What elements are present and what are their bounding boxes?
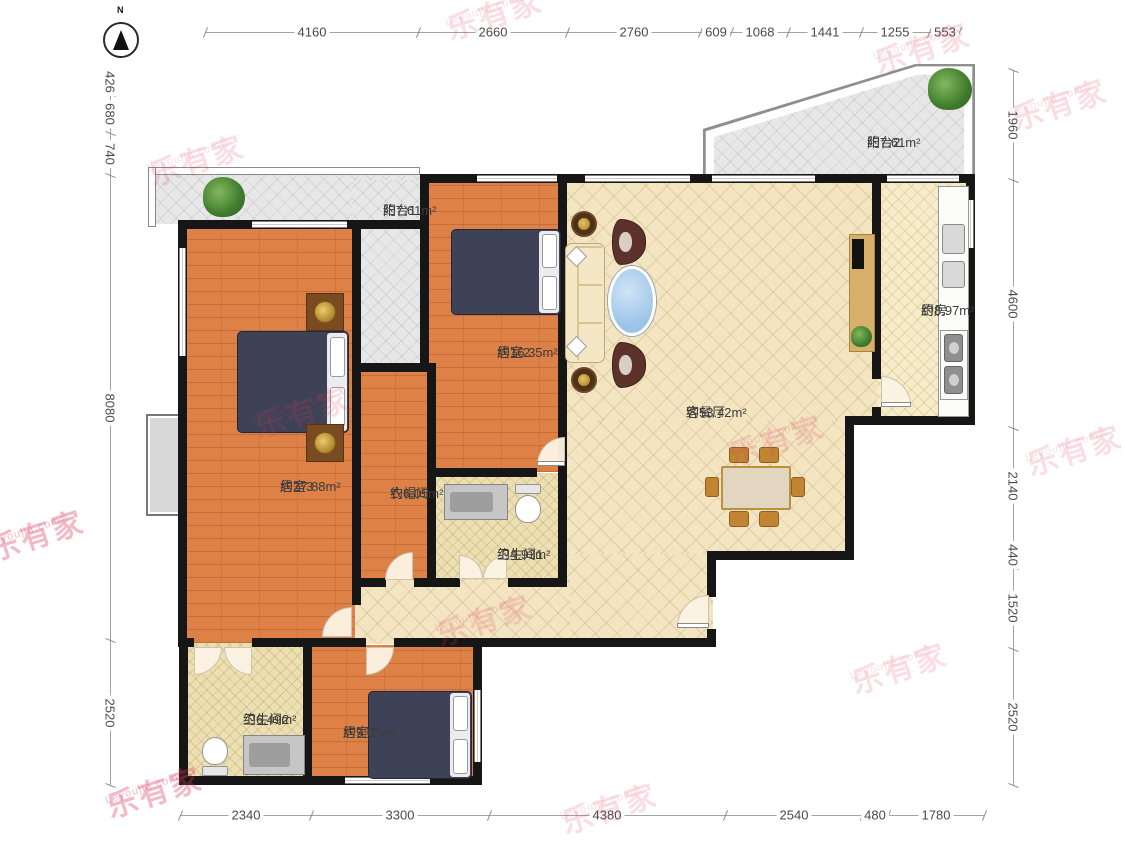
dimension-value: 4380 [590, 808, 625, 823]
window [712, 175, 815, 182]
kitchen-sink [942, 224, 965, 254]
stove-burner [944, 334, 963, 362]
dimension-value: 553 [931, 25, 959, 40]
dimension-value: 2520 [1006, 700, 1021, 735]
balcony1-railing [148, 167, 420, 175]
window [887, 175, 959, 182]
wall [179, 638, 188, 785]
tv [852, 239, 864, 269]
dimension-value: 426 [103, 68, 118, 96]
bed-bedroom3 [237, 331, 349, 433]
cloakroom-floor [357, 368, 433, 584]
dining-chair [759, 447, 779, 463]
wall [414, 578, 436, 587]
brand-watermark: 乐有家Leyoujia.com® [1024, 407, 1125, 453]
dimension-value: 8080 [103, 391, 118, 426]
entry-foyer-floor [563, 554, 713, 644]
window [252, 221, 347, 228]
balcony1-railing [148, 167, 156, 227]
dimension-value: 2520 [103, 696, 118, 731]
bedroom2-floor [425, 180, 563, 472]
dimension-value: 4160 [295, 25, 330, 40]
dimension-value: 1441 [808, 25, 843, 40]
bed-bedroom2 [451, 229, 561, 315]
stove-burner [944, 366, 963, 394]
brand-watermark: 乐有家Leyoujia.com® [444, 0, 587, 17]
kitchen-appliance [942, 261, 965, 288]
brand-watermark: 乐有家Leyoujia.com® [1009, 61, 1125, 107]
dimension-value: 2660 [476, 25, 511, 40]
wall [352, 220, 361, 605]
dimension-value: 3300 [383, 808, 418, 823]
toilet [515, 484, 541, 494]
wall [707, 551, 854, 560]
wall [845, 416, 854, 560]
wall [872, 407, 881, 421]
dimension-tick [982, 810, 987, 821]
brand-watermark: 乐有家Leyoujia.com® [559, 765, 702, 811]
nightstand-lamp [306, 424, 344, 462]
nightstand-lamp [306, 293, 344, 331]
dining-chair [705, 477, 719, 497]
door-leaf [537, 461, 565, 466]
dimension-value: 2760 [617, 25, 652, 40]
side-table [571, 211, 597, 237]
dimension-value: 740 [103, 140, 118, 168]
wall [252, 638, 366, 647]
toilet [202, 766, 228, 776]
side-table [571, 367, 597, 393]
wall [352, 578, 386, 587]
brand-watermark: 乐有家Leyoujia.com® [849, 625, 992, 671]
dimension-value: 2540 [777, 808, 812, 823]
dimension-value: 440 [1006, 541, 1021, 569]
dimension-value: 4600 [1006, 287, 1021, 322]
ac-platform [146, 414, 182, 516]
toilet [515, 495, 541, 523]
wall [394, 638, 716, 647]
potted-plant [851, 326, 872, 347]
dining-chair [729, 447, 749, 463]
dimension-value: 2140 [1006, 469, 1021, 504]
door-leaf [881, 402, 911, 407]
dimension-line [110, 70, 111, 785]
floor-plan: N [0, 0, 1125, 844]
bathroom1-vanity [444, 484, 508, 520]
dimension-value: 2340 [229, 808, 264, 823]
dining-chair [791, 477, 805, 497]
dimension-value: 480 [861, 808, 889, 823]
bathroom2-vanity [243, 735, 305, 775]
balcony-plant [203, 177, 245, 217]
dining-chair [729, 511, 749, 527]
dining-chair [759, 511, 779, 527]
dimension-value: 1780 [919, 808, 954, 823]
dimension-value: 1255 [878, 25, 913, 40]
dining-table [721, 466, 791, 510]
window [179, 248, 186, 356]
wall [845, 416, 975, 425]
hallway-floor [355, 580, 570, 644]
toilet [202, 737, 228, 765]
wall [707, 551, 716, 597]
dimension-value: 609 [702, 25, 730, 40]
window [474, 690, 481, 762]
dimension-value: 1960 [1006, 108, 1021, 143]
compass-north-label: N [117, 5, 124, 15]
dimension-value: 680 [103, 100, 118, 128]
dimension-value: 1068 [743, 25, 778, 40]
balcony-plant [928, 68, 972, 110]
wall [427, 468, 537, 477]
window [585, 175, 690, 182]
dimension-value: 1520 [1006, 591, 1021, 626]
wall [352, 363, 429, 372]
brand-watermark: 乐有家Leyoujia.com® [146, 117, 289, 163]
compass-arrow-icon [113, 30, 129, 50]
window [477, 175, 557, 182]
door-leaf [677, 623, 709, 628]
coffee-table [608, 266, 656, 336]
